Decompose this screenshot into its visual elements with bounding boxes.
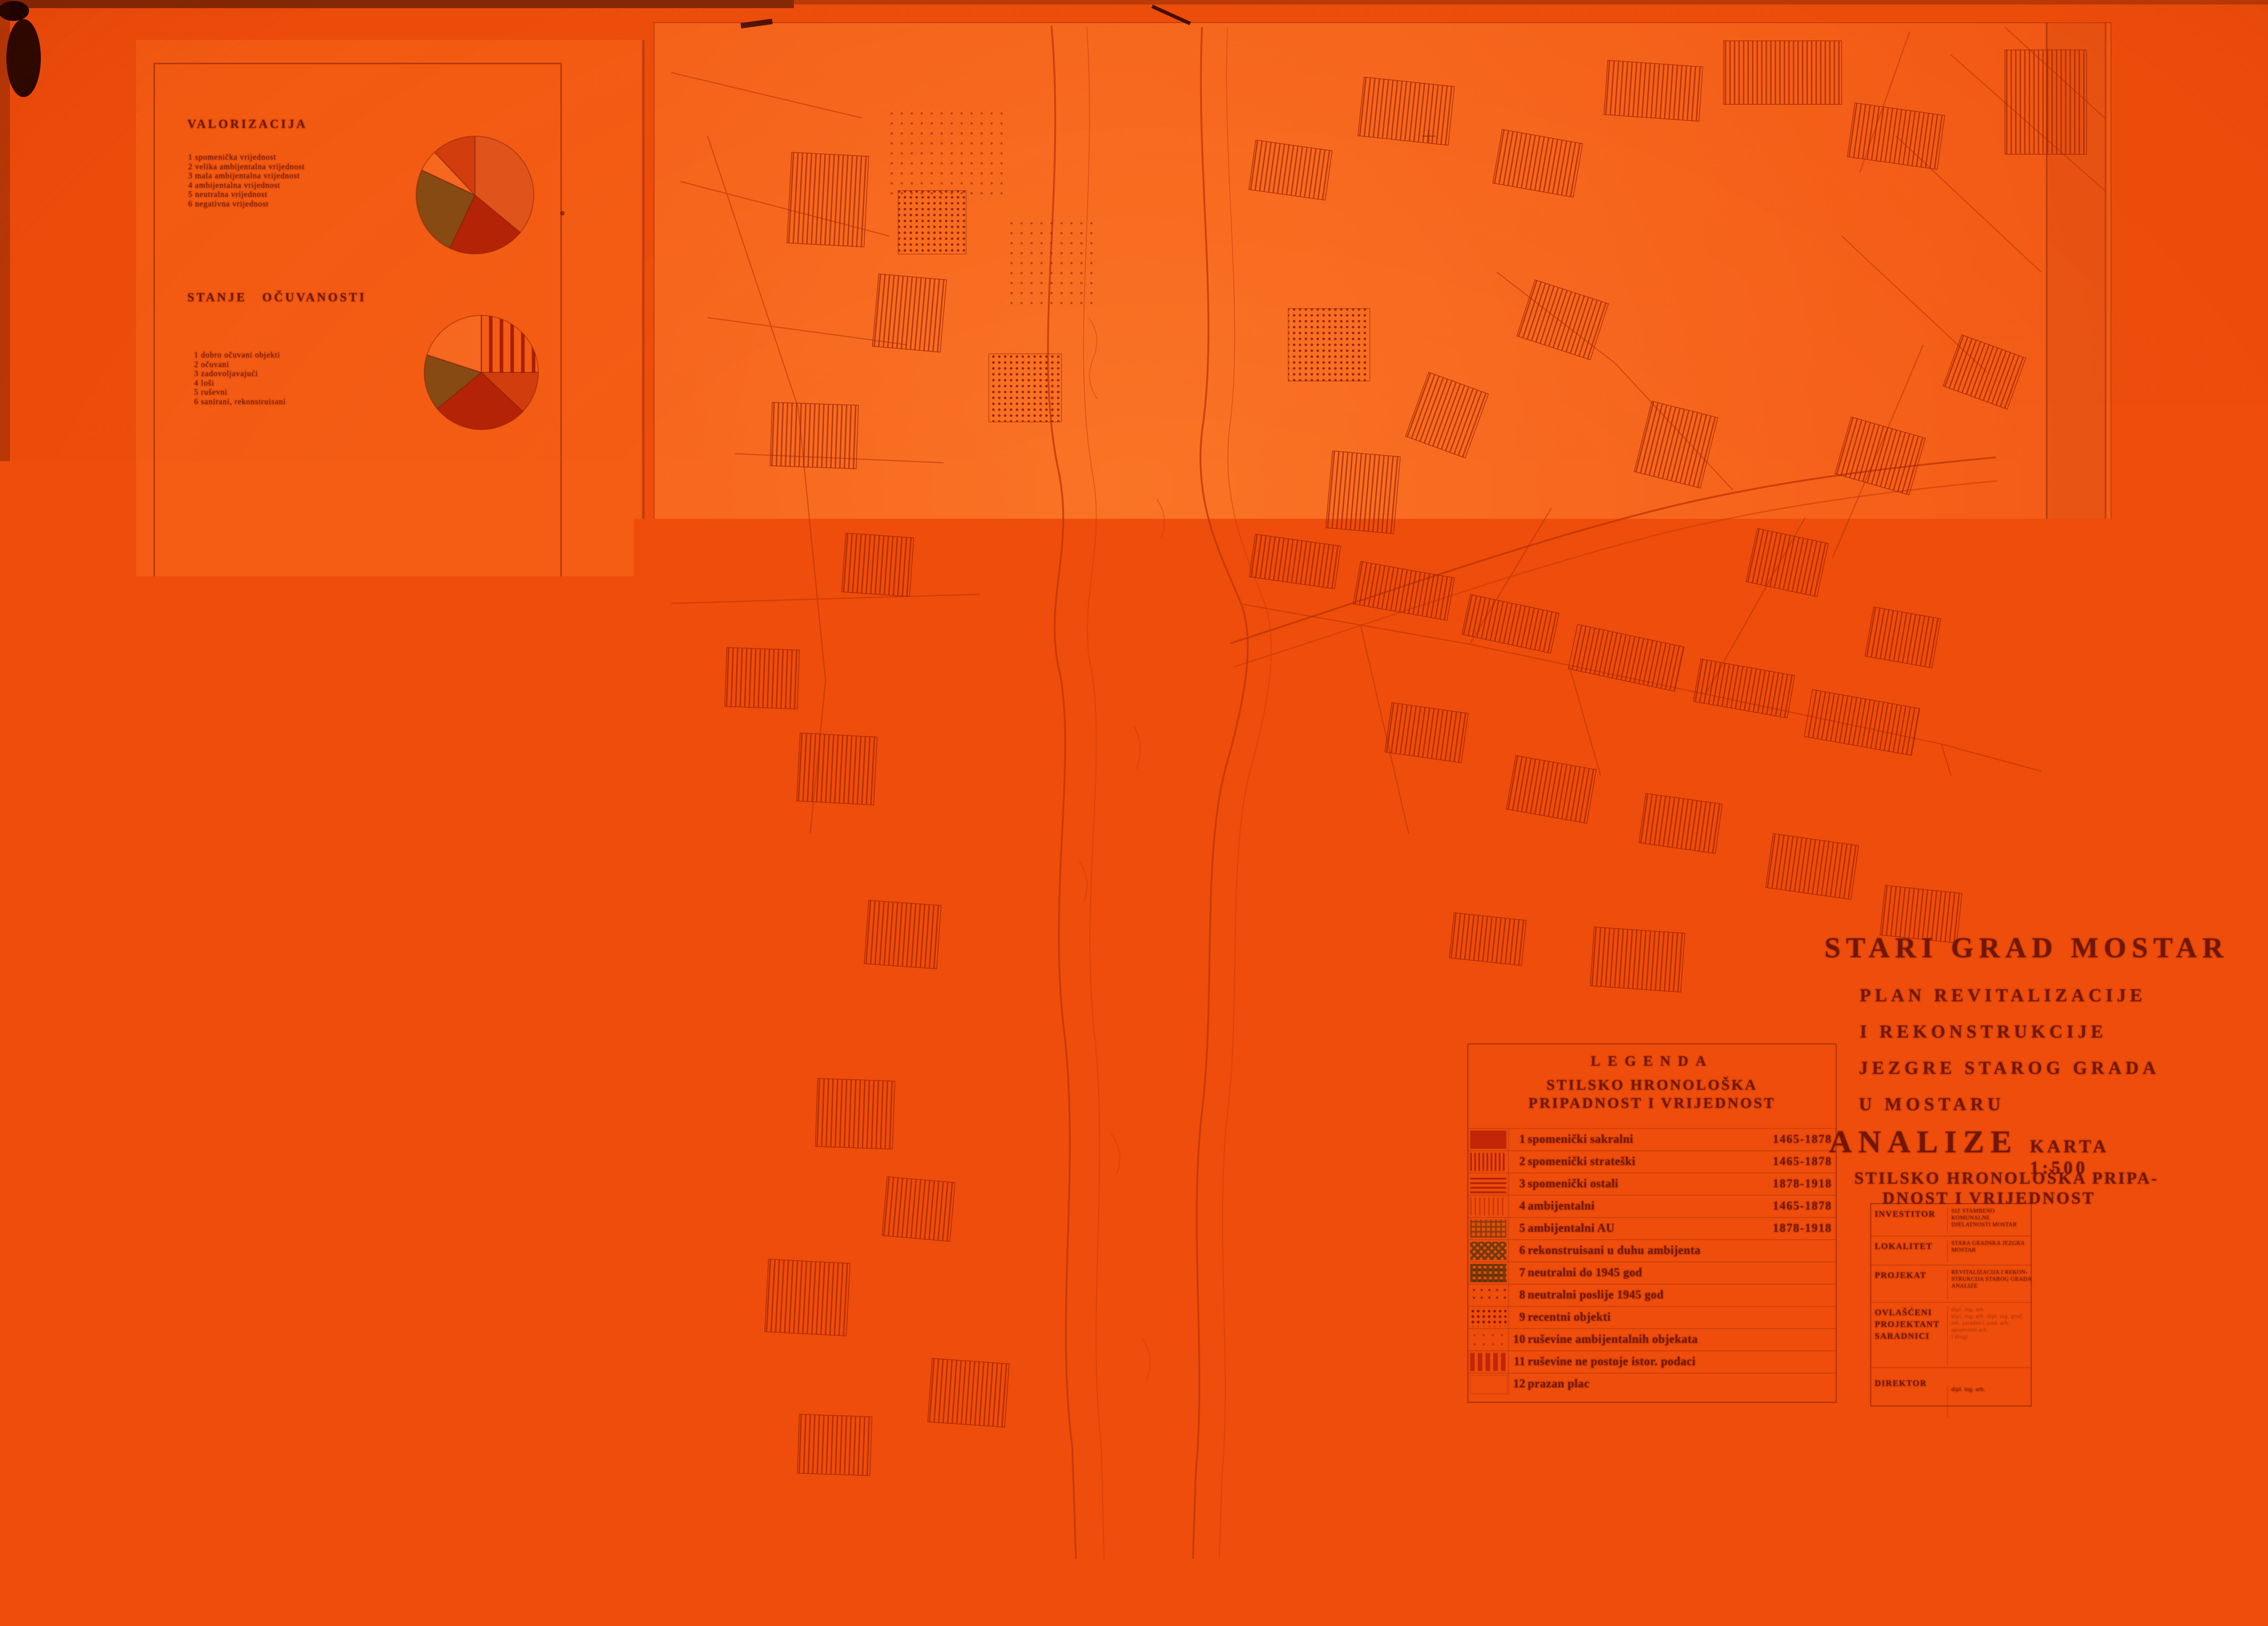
legend-subtitle-2: PRIPADNOST I VRIJEDNOST <box>1468 1095 1836 1112</box>
list-item: 5 čerpič i ćatma <box>195 1058 323 1069</box>
publisher-smallprint-2: obnove spomeničkog naslijeđa <box>180 1448 568 1455</box>
publisher-smallprint-2: obnove spomeničkog naslijeđa <box>1882 1444 2060 1451</box>
legend-swatch <box>1468 1218 1509 1240</box>
info-row-projekat: PROJEKATREVITALIZACIJA I REKON- STRUKCIJ… <box>1871 1265 2031 1303</box>
stilsko-hronoloska-pie <box>407 829 553 975</box>
list-item: 1 spomenički sakralni 1465-1878 <box>187 819 315 830</box>
list-item: 9 limeni pokrov <box>194 592 252 602</box>
list-item: 7 AB noseći sa ispunom od kamena <box>195 1081 323 1092</box>
list-item: 3 zadovoljavajući <box>194 369 286 378</box>
medjusprat-stepeniste-pie <box>405 1174 512 1281</box>
title-line-5: U MOSTARU <box>1859 1093 2004 1115</box>
list-item: 9 recentni objekti <box>187 906 315 917</box>
list-item: 2 velika ambijentalna vrijednost <box>188 162 305 171</box>
legend-swatch <box>1468 1307 1509 1329</box>
list-item: 10 kombinovano <box>195 1273 289 1284</box>
list-item: 9 metalno <box>195 1261 289 1273</box>
title-line-4: JEZGRE STAROG GRADA <box>1859 1057 2160 1078</box>
brand-stari-grad: ·Stari grad· <box>1968 1465 2054 1484</box>
list-item: 5 ruševni <box>194 387 286 397</box>
zidovi-list: 1 pravilni tesani kamen2 lomljeni kamen,… <box>195 1013 323 1103</box>
title-line-2: PLAN REVITALIZACIJE <box>1860 984 2146 1006</box>
logo-sub-left: žiro račun <box>296 1521 322 1528</box>
brand-mostar: Mostar <box>1970 1489 2019 1505</box>
publisher-block-right: Kartu izradila je služba tehničke zaštit… <box>1882 1431 2061 1550</box>
legend-swatch <box>1468 1329 1509 1351</box>
list-item: 4 ambijentalna vrijednost <box>188 181 305 190</box>
list-item: 2 očuvani <box>194 360 286 369</box>
legend-row: 12prazan plac <box>1468 1373 1836 1396</box>
stanje-list: 1 dobro očuvani objekti2 očuvani3 zadovo… <box>194 350 286 406</box>
list-item: 5 AB ploča <box>195 1216 289 1227</box>
list-item: 5 ambijentalni AU 1878-1918 <box>187 863 315 874</box>
legend-swatch <box>1468 1284 1509 1307</box>
list-item: 5 kamena ploča <box>194 548 252 559</box>
legend-swatch <box>1468 1240 1509 1262</box>
slide-photo: Radobolja Neretva VALORIZACIJA 1 spomeni… <box>0 0 2268 1626</box>
logo-address: Ul. M. Tita br. 16 <box>1969 1527 2011 1533</box>
legend-row: 2spomenički strateški1465-1878 <box>1468 1151 1836 1173</box>
valorizacija-pie <box>414 134 536 256</box>
legend-row: 11ruševine ne postoje istor. podaci <box>1468 1351 1836 1373</box>
list-item: 3 mala ambijentalna vrijednost <box>188 171 305 181</box>
legend-title: LEGENDA <box>1468 1053 1836 1069</box>
list-item: 3 spomenički ostali 1878-1918 <box>187 841 315 852</box>
list-item: 3 šator krov <box>194 526 252 537</box>
list-item: 6 rekonstruisani u duhu ambijenta <box>187 874 315 885</box>
list-item: 2 ravan krov <box>194 515 252 526</box>
section-title-stanje: STANJE OČUVANOSTI <box>187 290 367 304</box>
list-item: 11 ruševine ne postoje istor. podaci <box>187 928 315 939</box>
zidovi-fasade-pie <box>407 994 524 1112</box>
list-item: 3 lomljeni kamen, malterisan <box>195 1035 323 1047</box>
krov-list: 1 kosi krov2 ravan krov3 šator krov4 kup… <box>194 504 252 602</box>
publisher-block-left: Kartu izradila je služba tehničke zaštit… <box>179 1434 569 1547</box>
list-item: 8 salonit ploče <box>194 581 252 592</box>
logo-sub-right: 35800-603-45 <box>434 1521 470 1528</box>
legend-swatch <box>1468 1195 1509 1218</box>
legend-row: 5ambijentalni AU1878-1918 <box>1468 1217 1836 1240</box>
legend-box: LEGENDA STILSKO HRONOLOŠKA PRIPADNOST I … <box>1467 1043 1837 1403</box>
legend-row: 10ruševine ambijentalnih objekata <box>1468 1328 1836 1351</box>
legend-swatch <box>1468 1151 1509 1173</box>
list-item: 4 opeka <box>195 1047 323 1058</box>
list-item: 7 neutralni do 1945 god <box>187 885 315 896</box>
list-item: 2 drvena i malter <box>195 1182 289 1193</box>
panel-footnote: Karta izgrađena je u granicama zahvata r… <box>163 1377 553 1385</box>
logo-sub-line: Telefon 35-45, Mostar SFRJ <box>296 1531 369 1538</box>
publisher-smallprint-1: Kartu izradila je služba tehničke zaštit… <box>180 1440 568 1447</box>
legend-subtitle-1: STILSKO HRONOLOŠKA <box>1468 1077 1836 1094</box>
list-item: 2 spomenički strateški 1465-1878 <box>187 830 315 841</box>
list-item: 10 ruševine ambijentalnih objekata <box>187 917 315 928</box>
title-line-3: I REKONSTRUKCIJE <box>1860 1021 2107 1042</box>
section-title-zidovi: ZIDOVI I FASADE <box>193 972 331 986</box>
analize-label: ANALIZE <box>1829 1124 2018 1161</box>
valorizacija-list: 1 spomenička vrijednost2 velika ambijent… <box>188 152 305 208</box>
legend-row: 9recentni objekti <box>1468 1306 1836 1329</box>
legend-row: 6rekonstruisani u duhu ambijenta <box>1468 1239 1836 1262</box>
list-item: 8 neutralni poslije 1945 god <box>187 896 315 906</box>
legend-swatch <box>1468 1262 1509 1284</box>
legend-row: 8neutralni poslije 1945 god <box>1468 1284 1836 1307</box>
legend-row: 3spomenički ostali1878-1918 <box>1468 1173 1836 1195</box>
list-item: 3 drvena greda <box>195 1193 289 1205</box>
list-item: 6 negativna vrijednost <box>188 199 305 209</box>
stilsko-list: 1 spomenički sakralni 1465-18782 spomeni… <box>187 819 315 950</box>
section-title-valorizacija: VALORIZACIJA <box>187 117 308 131</box>
list-item: 7 drveno <box>195 1239 289 1250</box>
stari-grad-emblem-icon <box>1888 1457 1956 1518</box>
map-title: STARI GRAD MOSTAR <box>1824 931 2229 965</box>
title-sub-1: STILSKO HRONOLOŠKA PRIPA- <box>1854 1169 2159 1188</box>
legend-swatch <box>1468 1129 1509 1151</box>
section-title-stilsko-2: PRIPADNOST I VRIJEDNOST <box>183 795 366 809</box>
list-item: 4 loši <box>194 378 286 388</box>
legend-swatch <box>1468 1373 1509 1396</box>
project-info-table: INVESTITORSIZ STAMBENO KOMUNALNE DJELATN… <box>1870 1203 2032 1406</box>
info-row-lokalitet: LOKALITETSTARA GRADSKA JEZGRA MOSTAR <box>1871 1236 2031 1265</box>
list-item: 5 neutralna vrijednost <box>188 190 305 199</box>
info-row-investitor: INVESTITORSIZ STAMBENO KOMUNALNE DJELATN… <box>1871 1204 2031 1236</box>
list-item: 4 ambijentalni 1465-1878 <box>187 852 315 863</box>
list-item: 2 lomljeni kamen, dersovan <box>195 1024 323 1035</box>
list-item: 6 bondruk, plet <box>195 1069 323 1081</box>
list-item: 1 dobro očuvani objekti <box>194 350 286 360</box>
stari-grad-emblem-icon <box>198 1458 280 1531</box>
list-item: 1 pravilni tesani kamen <box>195 1013 323 1024</box>
list-item: 1 spomenička vrijednost <box>188 152 305 162</box>
left-analysis-panel: VALORIZACIJA 1 spomenička vrijednost2 ve… <box>0 0 635 1626</box>
list-item: 12 prazan plac <box>187 939 315 950</box>
medjusprat-list: 1 svod2 drvena i malter3 drvena greda4 A… <box>195 1171 289 1284</box>
list-item: 4 AB ploča i drvene grede <box>195 1205 289 1216</box>
list-item: 8 AB <box>195 1250 289 1261</box>
section-title-stilsko-1: STILSKO HRONOLOŠKA <box>185 780 350 794</box>
publisher-smallprint-1: Kartu izradila je služba tehničke zaštit… <box>1882 1437 2060 1444</box>
info-row-direktor: DIREKTORdipl. ing. arh. <box>1871 1367 2031 1406</box>
krov-pokrov-pie <box>427 486 531 590</box>
section-title-medjusprat: MEĐU-SPRAT, STEPENIŠTE <box>191 1138 383 1152</box>
legend-row: 4ambijentalni1465-1878 <box>1468 1195 1836 1218</box>
legend-swatch <box>1468 1351 1509 1373</box>
list-item: 8 AB paneli, nove fasadne obloge <box>195 1092 323 1103</box>
list-item: 1 kosi krov <box>194 504 252 515</box>
legend-swatch <box>1468 1173 1509 1195</box>
info-row-projektant: OVLAŠĆENI PROJEKTANT SARADNICIdipl. ing.… <box>1871 1302 2031 1368</box>
section-title-krov: KROV I POKROV <box>187 464 331 478</box>
list-item: 4 kupola <box>194 537 252 548</box>
legend-row: 1spomenički sakralni1465-1878 <box>1468 1128 1836 1151</box>
brand-mostar: Mostar <box>301 1494 360 1515</box>
karta-summary-pie <box>1278 1065 1407 1194</box>
logo-address: Ul. M. Tita br. 16 <box>191 1533 236 1541</box>
list-item: 7 ćeramida <box>194 570 252 581</box>
list-item: 6 kupa kanalica <box>194 559 252 570</box>
list-item: 6 kameno <box>195 1227 289 1239</box>
stanje-ocuvanosti-pie <box>422 313 541 432</box>
legend-row: 7neutralni do 1945 god <box>1468 1262 1836 1284</box>
list-item: 1 svod <box>195 1171 289 1182</box>
list-item: 6 sanirani, rekonstruisani <box>194 397 286 406</box>
brand-stari-grad: ·Stari grad· <box>297 1467 401 1490</box>
